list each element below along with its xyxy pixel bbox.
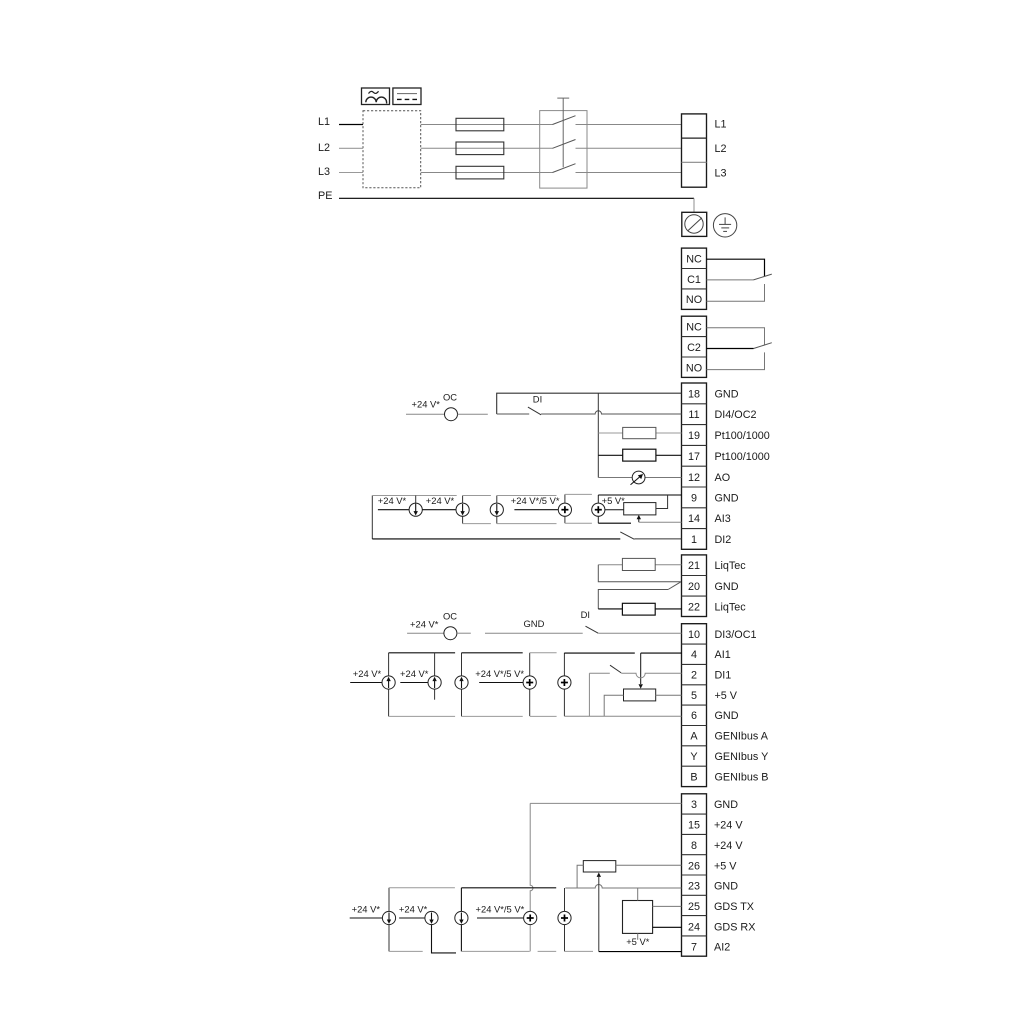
svg-text:+5 V: +5 V [715, 690, 738, 702]
svg-text:NO: NO [686, 362, 702, 374]
svg-text:GDS RX: GDS RX [714, 922, 755, 934]
svg-text:+24 V*/5 V*: +24 V*/5 V* [476, 903, 525, 914]
svg-text:+24 V*: +24 V* [378, 495, 407, 506]
svg-text:DI: DI [533, 393, 542, 404]
svg-text:NC: NC [686, 321, 702, 333]
svg-text:Pt100/1000: Pt100/1000 [715, 451, 770, 463]
svg-text:DI4/OC2: DI4/OC2 [715, 409, 757, 421]
svg-text:GND: GND [715, 388, 739, 400]
svg-text:+24 V*: +24 V* [400, 668, 429, 679]
svg-text:L1: L1 [715, 118, 727, 130]
svg-text:L3: L3 [318, 166, 330, 178]
svg-text:AO: AO [715, 472, 731, 484]
svg-text:+5 V: +5 V [714, 860, 737, 872]
svg-text:DI2: DI2 [715, 534, 732, 546]
svg-text:DI: DI [581, 609, 590, 620]
svg-text:+24 V*: +24 V* [399, 903, 428, 914]
svg-text:GND: GND [524, 618, 545, 629]
svg-text:L1: L1 [318, 116, 330, 128]
svg-text:+24 V*/5 V*: +24 V*/5 V* [475, 668, 524, 679]
svg-text:10: 10 [688, 629, 700, 641]
svg-text:21: 21 [688, 560, 700, 572]
svg-text:3: 3 [691, 799, 697, 811]
svg-text:20: 20 [688, 581, 700, 593]
svg-text:18: 18 [688, 388, 700, 400]
svg-text:8: 8 [691, 840, 697, 852]
svg-text:+24 V*: +24 V* [412, 398, 441, 409]
svg-text:GND: GND [715, 493, 739, 505]
svg-text:LiqTec: LiqTec [715, 601, 747, 613]
svg-text:11: 11 [688, 409, 699, 421]
svg-text:GDS TX: GDS TX [714, 901, 754, 913]
svg-text:OC: OC [443, 611, 457, 622]
svg-text:1: 1 [691, 534, 697, 546]
svg-text:LiqTec: LiqTec [715, 560, 747, 572]
svg-text:+24 V*: +24 V* [410, 618, 439, 629]
svg-text:AI1: AI1 [715, 649, 731, 661]
svg-text:AI2: AI2 [714, 941, 730, 953]
svg-text:+24 V: +24 V [714, 840, 743, 852]
svg-text:14: 14 [688, 513, 700, 525]
svg-text:B: B [690, 772, 697, 784]
svg-text:Y: Y [690, 751, 697, 763]
svg-text:C2: C2 [687, 342, 701, 354]
svg-text:GENIbus Y: GENIbus Y [715, 751, 769, 763]
svg-text:+24 V: +24 V [714, 820, 743, 832]
svg-text:24: 24 [688, 922, 700, 934]
svg-text:GENIbus A: GENIbus A [715, 731, 769, 743]
svg-text:17: 17 [688, 451, 700, 463]
svg-text:AI3: AI3 [715, 513, 731, 525]
svg-text:DI3/OC1: DI3/OC1 [715, 629, 757, 641]
svg-text:C1: C1 [687, 274, 701, 286]
svg-text:OC: OC [443, 392, 457, 403]
svg-text:A: A [690, 731, 698, 743]
svg-text:Pt100/1000: Pt100/1000 [715, 430, 770, 442]
svg-text:DI1: DI1 [715, 669, 732, 681]
svg-text:PE: PE [318, 190, 332, 202]
svg-text:GND: GND [714, 799, 738, 811]
svg-text:GENIbus B: GENIbus B [715, 772, 769, 784]
svg-text:25: 25 [688, 901, 700, 913]
svg-text:+24 V*: +24 V* [353, 668, 382, 679]
svg-text:L2: L2 [318, 142, 330, 154]
svg-text:+24 V*: +24 V* [426, 495, 455, 506]
svg-text:+24 V*: +24 V* [352, 903, 381, 914]
svg-text:GND: GND [714, 881, 738, 893]
svg-text:5: 5 [691, 690, 697, 702]
svg-text:+5 V*: +5 V* [626, 936, 650, 947]
svg-text:GND: GND [715, 581, 739, 593]
svg-text:19: 19 [688, 430, 700, 442]
svg-text:NC: NC [686, 253, 702, 265]
svg-text:6: 6 [691, 710, 697, 722]
svg-text:26: 26 [688, 860, 700, 872]
svg-text:4: 4 [691, 649, 697, 661]
svg-text:NO: NO [686, 294, 702, 306]
svg-text:22: 22 [688, 601, 700, 613]
svg-text:23: 23 [688, 881, 700, 893]
svg-text:+5 V*: +5 V* [602, 495, 626, 506]
svg-text:L3: L3 [715, 167, 727, 179]
svg-text:+24 V*/5 V*: +24 V*/5 V* [511, 495, 560, 506]
svg-text:15: 15 [688, 820, 700, 832]
svg-text:12: 12 [688, 472, 700, 484]
svg-text:9: 9 [691, 493, 697, 505]
svg-text:GND: GND [715, 710, 739, 722]
svg-text:7: 7 [691, 941, 697, 953]
svg-text:2: 2 [691, 669, 697, 681]
svg-text:L2: L2 [715, 143, 727, 155]
